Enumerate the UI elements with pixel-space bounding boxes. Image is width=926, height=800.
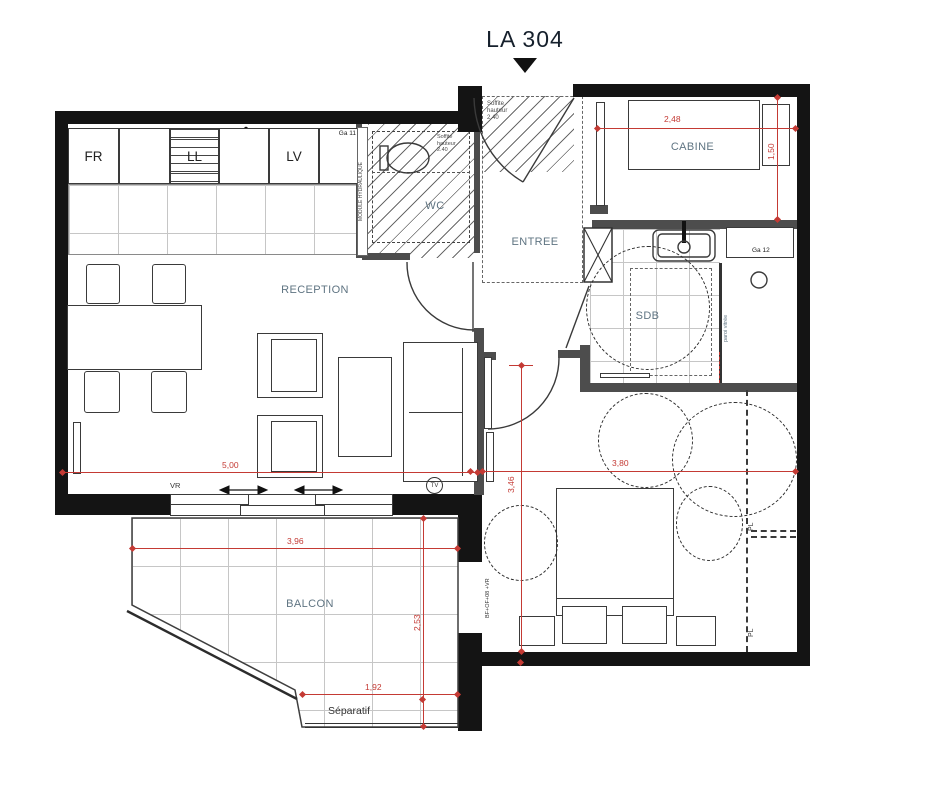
cabine-bed	[628, 100, 760, 170]
partition-corridor-chambre	[558, 350, 584, 358]
entree-dashed-boundary	[482, 96, 583, 283]
balcony-floor-tiles	[132, 518, 458, 728]
dining-chair	[86, 264, 120, 304]
washer-label: LL	[170, 128, 219, 184]
wc-door	[407, 262, 474, 332]
dim-line-cabine-width	[597, 128, 796, 129]
dim-line-cabine-depth	[777, 97, 778, 220]
dining-chair	[152, 264, 186, 304]
separatif-label: Séparatif	[328, 705, 392, 717]
sliding-window-panel	[315, 494, 393, 505]
fridge-label: FR	[68, 128, 119, 184]
dim-cabine-width: 2,48	[664, 114, 681, 124]
wc-dashed-line	[372, 172, 470, 173]
dim-line-chambre-width	[482, 471, 796, 472]
room-label-entree: ENTREE	[497, 236, 573, 248]
dim-chambre-width: 3,80	[612, 458, 629, 468]
room-label-cabine: CABINE	[650, 141, 735, 153]
sliding-window-panel	[170, 494, 249, 505]
radiator	[486, 432, 494, 482]
partition-wc-entree	[474, 132, 480, 253]
vr-label: VR	[170, 481, 180, 490]
nightstand	[676, 616, 716, 646]
chambre-bed-line	[557, 598, 673, 599]
room-label-sdb: SDB	[625, 310, 670, 322]
entree-soffit-note: Soffite hauteur 2.40	[487, 101, 514, 123]
wall-right	[797, 84, 810, 666]
room-label-wc: WC	[405, 200, 465, 212]
closet-label: PL	[748, 622, 758, 644]
plan-title: LA 304	[455, 26, 595, 53]
chambre-door-arc	[488, 358, 559, 429]
sofa-back-line	[462, 348, 463, 476]
cabine-pocket-door	[596, 102, 605, 206]
dining-table	[67, 305, 202, 370]
dim-line-reception-width	[62, 472, 478, 473]
sdb-dashed-zone	[630, 268, 712, 376]
wall-chambre-left-lower	[458, 633, 482, 731]
room-label-reception: RECEPTION	[260, 284, 370, 296]
dining-chair	[151, 371, 187, 413]
coffee-table	[338, 357, 392, 457]
sliding-window-panel	[240, 505, 325, 516]
room-label-balcon: BALCON	[275, 598, 345, 610]
nightstand	[519, 616, 555, 646]
dim-reception-width: 5,00	[222, 460, 239, 470]
ga11-label: Ga 11	[326, 130, 356, 137]
shower-head-icon	[751, 272, 767, 288]
ga12-label: Ga 12	[752, 247, 792, 254]
glass-partition-red-dash	[719, 352, 720, 383]
chambre-bed	[556, 488, 674, 616]
module-hydraulique-label: MODULE HYDRAULIQUE	[357, 127, 368, 256]
kitchen-counter-tiles	[68, 184, 360, 255]
sofa-seat-line	[409, 412, 462, 413]
partition-wc-bottom	[362, 253, 410, 260]
armchair-cushion	[271, 421, 317, 472]
sink-box	[219, 128, 269, 184]
glass-partition-label: paroi vitrée	[723, 296, 733, 360]
pillow	[622, 606, 667, 644]
dishwasher-label: LV	[269, 128, 319, 184]
dim-separatif-width: 1,92	[365, 682, 382, 692]
dim-chambre-depth: 3,46	[506, 468, 516, 502]
dim-balcon-depth: 2,53	[412, 606, 422, 640]
floor-plan: LA 304	[0, 0, 926, 800]
pillow	[562, 606, 607, 644]
wall-bottom-left	[55, 494, 170, 515]
sdb-towel-bar	[600, 373, 650, 378]
dim-line-balcon-width	[132, 548, 458, 549]
entrance-pointer-icon	[513, 58, 537, 73]
sdb-door	[566, 286, 589, 348]
dim-crosshair	[509, 365, 533, 366]
partition-cabine-pocket	[590, 205, 608, 214]
wall-top-left	[55, 111, 461, 124]
cooktop-box	[119, 128, 170, 184]
separatif-screen	[305, 723, 458, 728]
dining-chair	[84, 371, 120, 413]
chambre-door-leaf	[484, 357, 492, 429]
turning-circle	[676, 486, 743, 561]
balcony-door-spec-label: BF+OF+08 +VR	[485, 562, 496, 634]
dim-balcon-width: 3,96	[287, 536, 304, 546]
sliding-window-arrows-icon	[220, 486, 342, 494]
wc-soffit-note: Soffite hauteur 2.40	[437, 134, 463, 154]
wall-entrance-left-stub	[458, 86, 482, 132]
partition-sdb-bottom	[580, 383, 797, 392]
armchair-cushion	[271, 339, 317, 392]
closet-label: PL	[748, 516, 758, 538]
tv-outlet-icon: TV	[426, 477, 443, 494]
radiator	[73, 422, 81, 474]
dim-line-separatif-width	[302, 694, 458, 695]
dim-cabine-depth: 1,50	[766, 135, 776, 169]
wall-bottom-mid	[393, 494, 482, 515]
wall-bottom-chambre	[480, 652, 810, 666]
dim-line-chambre-depth	[521, 365, 522, 652]
